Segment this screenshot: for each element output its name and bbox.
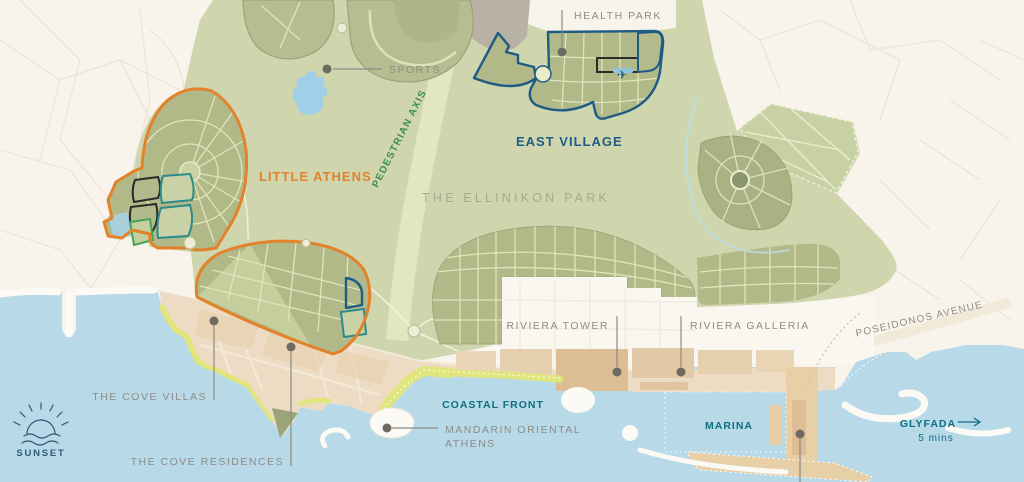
leader-dot <box>796 430 805 439</box>
leader-dot <box>677 368 686 377</box>
east-village-corner-parcel <box>638 32 662 72</box>
glyfada-label: GLYFADA <box>900 418 956 430</box>
mandarin-oriental-site <box>370 408 414 438</box>
park-node <box>535 66 551 82</box>
sunset-logo-text: SUNSET <box>16 448 65 459</box>
marina-inner-pier <box>770 405 782 445</box>
cove-villas-label: THE COVE VILLAS <box>92 391 207 403</box>
leader-dot <box>323 65 332 74</box>
park-title: THE ELLINIKON PARK <box>422 191 610 205</box>
glyfada-time-label: 5 mins <box>918 433 953 444</box>
leader-dot <box>558 48 567 57</box>
marina-label: MARINA <box>705 420 753 432</box>
riviera-tower-label: RIVIERA TOWER <box>506 320 609 332</box>
sports-label: SPORTS <box>389 64 441 76</box>
mandarin-oriental-label-line1: MANDARIN ORIENTAL <box>445 424 581 436</box>
plane-icon: ✈ <box>617 68 627 82</box>
east-village-label: EAST VILLAGE <box>516 134 623 149</box>
riviera-galleria-label: RIVIERA GALLERIA <box>690 320 810 332</box>
leader-dot <box>210 317 219 326</box>
map-canvas: ✈ HEALTH PARK SPORTS EAST VILLAGE LITTLE… <box>0 0 1024 482</box>
leader-dot <box>613 368 622 377</box>
fan-hub-node <box>731 171 749 189</box>
coastal-front-label: COASTAL FRONT <box>442 399 544 411</box>
mandarin-oriental-label-line2: ATHENS <box>445 438 496 450</box>
little-athens-label: LITTLE ATHENS <box>259 169 372 184</box>
cove-residences-label: THE COVE RESIDENCES <box>131 456 284 468</box>
health-park-label: HEALTH PARK <box>574 10 662 22</box>
leader-dot <box>383 424 392 433</box>
ellinikon-masterplan-map: ✈ HEALTH PARK SPORTS EAST VILLAGE LITTLE… <box>0 0 1024 482</box>
leader-dot <box>287 343 296 352</box>
